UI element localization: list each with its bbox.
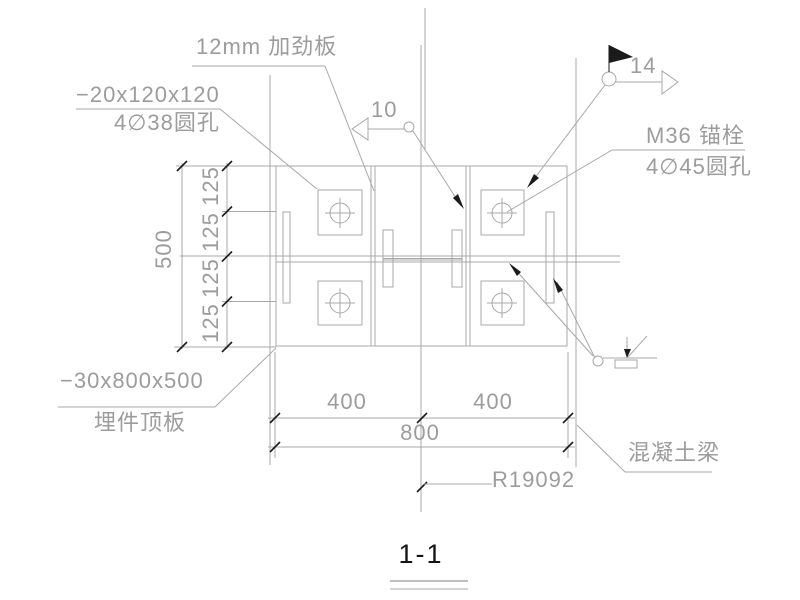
dim-seg-125-2: 125 (200, 212, 222, 252)
dim-right-width: 400 (473, 391, 513, 413)
dim-total-width: 800 (400, 422, 440, 444)
weld-size-10-label: 10 (371, 99, 397, 121)
washer-plate-holes-label: 4∅38圆孔 (114, 112, 220, 134)
embed-plate-size-label: −30x800x500 (60, 370, 204, 392)
radius-callout (417, 482, 492, 492)
cad-drawing-view: 12mm 加劲板 −20x120x120 4∅38圆孔 M36 锚栓 4∅45圆… (0, 0, 800, 600)
embed-plate-name-label: 埋件顶板 (94, 412, 186, 434)
dim-left-width: 400 (327, 391, 367, 413)
dim-seg-125-4: 125 (200, 303, 222, 343)
stiffener-plate-label: 12mm 加劲板 (196, 36, 337, 58)
anchor-bolt-label: M36 锚栓 (646, 125, 745, 147)
radius-ref-label: R19092 (492, 469, 575, 491)
dim-seg-125-1: 125 (200, 166, 222, 206)
dim-seg-125-3: 125 (200, 258, 222, 298)
weld-symbol-10 (352, 118, 464, 209)
concrete-beam-label: 混凝土梁 (628, 442, 720, 464)
section-title-underline (390, 581, 468, 589)
weld-symbol-bottom (509, 263, 657, 368)
washer-plate-size-label: −20x120x120 (76, 84, 220, 106)
weld-size-14-label: 14 (630, 55, 656, 77)
anchor-bar-rects (283, 212, 554, 303)
dim-total-height: 500 (153, 229, 175, 269)
anchor-bolt-holes-label: 4∅45圆孔 (646, 156, 752, 178)
section-title: 1-1 (398, 541, 443, 568)
